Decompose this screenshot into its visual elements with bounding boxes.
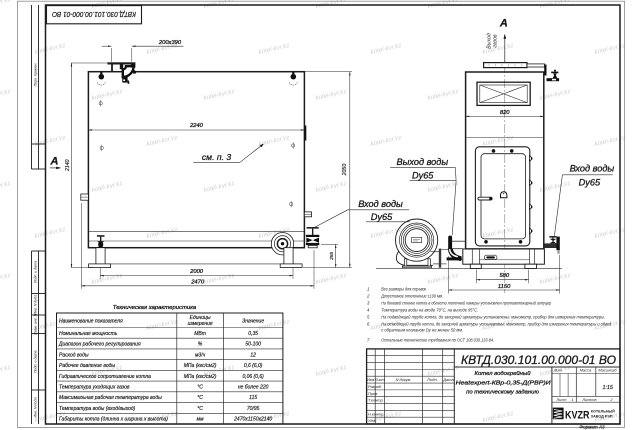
svg-text:Dy65: Dy65 (412, 171, 434, 181)
svg-text:МПа (кгс/см2): МПа (кгс/см2) (184, 374, 217, 380)
svg-text:Номинальная мощность: Номинальная мощность (59, 331, 118, 337)
svg-text:Температура воды на входе 70°: Температура воды на входе 70°С, на выход… (381, 307, 478, 312)
svg-text:2470х1150х2140: 2470х1150х2140 (233, 417, 272, 423)
svg-text:Утв.: Утв. (368, 418, 377, 423)
svg-text:Изм: Изм (367, 377, 375, 382)
svg-text:0,06 (0,6): 0,06 (0,6) (242, 374, 264, 380)
svg-text:°С: °С (197, 406, 203, 412)
svg-text:1150: 1150 (498, 284, 511, 290)
svg-text:Подп.: Подп. (427, 377, 437, 382)
svg-text:12: 12 (250, 352, 256, 358)
svg-text:%: % (198, 342, 203, 348)
svg-text:580: 580 (499, 273, 509, 279)
svg-text:КОТЕЛЬНЫЙ: КОТЕЛЬНЫЙ (591, 409, 615, 413)
svg-text:Максимальная рабочая температу: Максимальная рабочая температура воды (59, 395, 162, 401)
svg-text:А: А (499, 18, 508, 30)
svg-text:Н.контр.: Н.контр. (368, 411, 384, 416)
svg-text:На отводящей трубе котла, до з: На отводящей трубе котла, до запорной ар… (381, 321, 612, 326)
svg-text:2050: 2050 (342, 164, 348, 177)
svg-text:Инв. N подл.: Инв. N подл. (33, 396, 37, 417)
svg-text:Наименование показателя: Наименование показателя (59, 318, 123, 324)
svg-text:ЗАВОД РЭП: ЗАВОД РЭП (591, 414, 613, 418)
svg-text:Расход воды: Расход воды (59, 352, 89, 358)
svg-text:Т.контр.: Т.контр. (368, 398, 384, 403)
svg-text:КВТД.030.101.00.000-01 ВО: КВТД.030.101.00.000-01 ВО (51, 10, 136, 17)
svg-text:Вход воды: Вход воды (570, 164, 615, 174)
svg-text:200х390: 200х390 (158, 40, 182, 46)
svg-text:Техническая характеристика: Техническая характеристика (113, 305, 197, 311)
svg-text:Вход воды: Вход воды (358, 199, 403, 209)
svg-text:Инв. N дубл.: Инв. N дубл. (33, 294, 37, 315)
svg-text:Взам. инв. N: Взам. инв. N (33, 313, 37, 334)
svg-text:На боковой стенке котла в обла: На боковой стенке котла в области топочн… (381, 300, 552, 305)
svg-text:115: 115 (249, 395, 257, 401)
svg-text:не более 220: не более 220 (238, 384, 269, 390)
svg-text:газов: газов (493, 34, 499, 48)
svg-text:Формат А3: Формат А3 (579, 424, 605, 429)
svg-text:Dy65: Dy65 (371, 212, 393, 222)
svg-text:Значение: Значение (242, 318, 264, 324)
svg-text:Выход: Выход (486, 33, 492, 49)
svg-text:Лит: Лит (553, 368, 563, 373)
svg-text:Диапазон рабочего регулировани: Диапазон рабочего регулирования (58, 342, 141, 348)
svg-text:Масштаб: Масштаб (598, 368, 617, 373)
svg-text:Масса: Масса (580, 368, 592, 373)
svg-text:м3/ч: м3/ч (195, 352, 206, 358)
svg-text:°С: °С (197, 384, 203, 390)
svg-text:Все размеры для справок: Все размеры для справок (381, 286, 427, 291)
svg-text:МПа (кгс/см2): МПа (кгс/см2) (184, 363, 217, 369)
svg-text:°С: °С (197, 395, 203, 401)
svg-text:Температура уходящих газов: Температура уходящих газов (59, 384, 130, 390)
svg-text:Подп. и дата: Подп. и дата (33, 351, 37, 374)
svg-text:Перв. примен.: Перв. примен. (33, 63, 37, 87)
svg-text:Лист: Лист (374, 377, 386, 382)
svg-text:Выход воды: Выход воды (396, 157, 448, 167)
svg-text:0,35: 0,35 (248, 331, 258, 337)
svg-text:N докум.: N докум. (396, 377, 412, 382)
svg-text:0,6 (6,0): 0,6 (6,0) (244, 363, 263, 369)
svg-text:с обратным клапаном Dy не мен: с обратным клапаном Dy не менее 50 мм. (381, 328, 463, 333)
svg-text:2000: 2000 (189, 269, 204, 275)
svg-text:Dy65: Dy65 (579, 177, 601, 187)
svg-text:Листов: Листов (581, 397, 596, 402)
svg-text:Лист: Лист (555, 397, 567, 402)
svg-text:1: 1 (571, 397, 573, 402)
svg-text:820: 820 (500, 110, 510, 116)
svg-text:Котел водогрейный: Котел водогрейный (474, 370, 531, 377)
svg-text:2140: 2140 (65, 159, 71, 172)
svg-text:МВт: МВт (194, 331, 206, 337)
svg-text:50-100: 50-100 (245, 342, 261, 348)
svg-text:Температура воды (вход/выход): Температура воды (вход/выход) (59, 406, 136, 412)
svg-text:KVZR: KVZR (565, 409, 590, 421)
svg-text:Подп. и дата: Подп. и дата (33, 261, 37, 284)
svg-text:70/95: 70/95 (247, 406, 260, 412)
svg-text:Дата: Дата (442, 377, 454, 382)
svg-text:На подводящей трубе котла, до: На подводящей трубе котла, до запорной а… (381, 314, 605, 319)
svg-text:255: 255 (329, 252, 335, 261)
svg-text:КВТД.030.101.00.000-01 ВО: КВТД.030.101.00.000-01 ВО (461, 353, 617, 367)
svg-text:2470: 2470 (190, 279, 205, 285)
svg-text:см. п. 3: см. п. 3 (202, 152, 231, 162)
svg-text:2240: 2240 (189, 123, 204, 129)
svg-text:Гидравлическое сопротивление к: Гидравлическое сопротивление котла (59, 374, 151, 380)
svg-text:Остальные технические требован: Остальные технические требования по ОСТ … (381, 338, 494, 343)
svg-text:А: А (50, 156, 59, 168)
svg-text:Разраб.: Разраб. (368, 384, 382, 389)
svg-text:1:15: 1:15 (602, 385, 613, 391)
svg-text:Heatexpert-КВр-0,35-Д(РВР)И: Heatexpert-КВр-0,35-Д(РВР)И (456, 380, 552, 386)
svg-text:Рабочее давление воды: Рабочее давление воды (59, 363, 115, 369)
svg-text:Пров.: Пров. (368, 391, 378, 396)
svg-text:по техническому заданию: по техническому заданию (466, 389, 539, 395)
svg-text:мм: мм (197, 417, 204, 423)
svg-text:измерения: измерения (188, 321, 213, 327)
svg-text:Габариты котла (длинна х ширин: Габариты котла (длинна х ширина х высота… (59, 417, 168, 423)
svg-text:Допустимое отклонение ±100 мм: Допустимое отклонение ±100 мм. (380, 293, 443, 298)
